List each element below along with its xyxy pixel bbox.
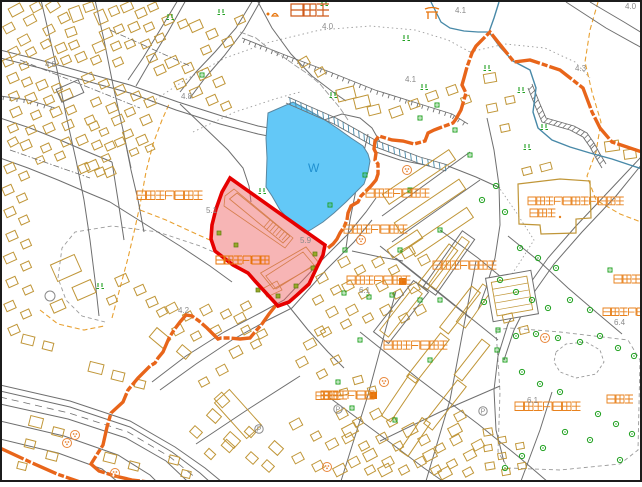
svg-text:4.0: 4.0 [625,2,637,11]
svg-text:P: P [257,427,262,434]
svg-text:6.4: 6.4 [614,318,626,327]
svg-text:P: P [336,407,341,414]
svg-text:4.0: 4.0 [322,22,334,31]
svg-text:5.9: 5.9 [300,236,312,245]
svg-text:6.1: 6.1 [359,286,371,295]
svg-text:5.1: 5.1 [206,206,218,215]
svg-text:4.8: 4.8 [181,92,193,101]
svg-text:6.1: 6.1 [527,396,539,405]
svg-text:P: P [481,409,486,416]
svg-text:4.2: 4.2 [178,306,190,315]
svg-text:4.3: 4.3 [575,64,587,73]
svg-text:W: W [308,161,320,175]
svg-text:4.8: 4.8 [45,60,57,69]
svg-text:4.1: 4.1 [405,75,417,84]
svg-text:4.1: 4.1 [455,6,467,15]
